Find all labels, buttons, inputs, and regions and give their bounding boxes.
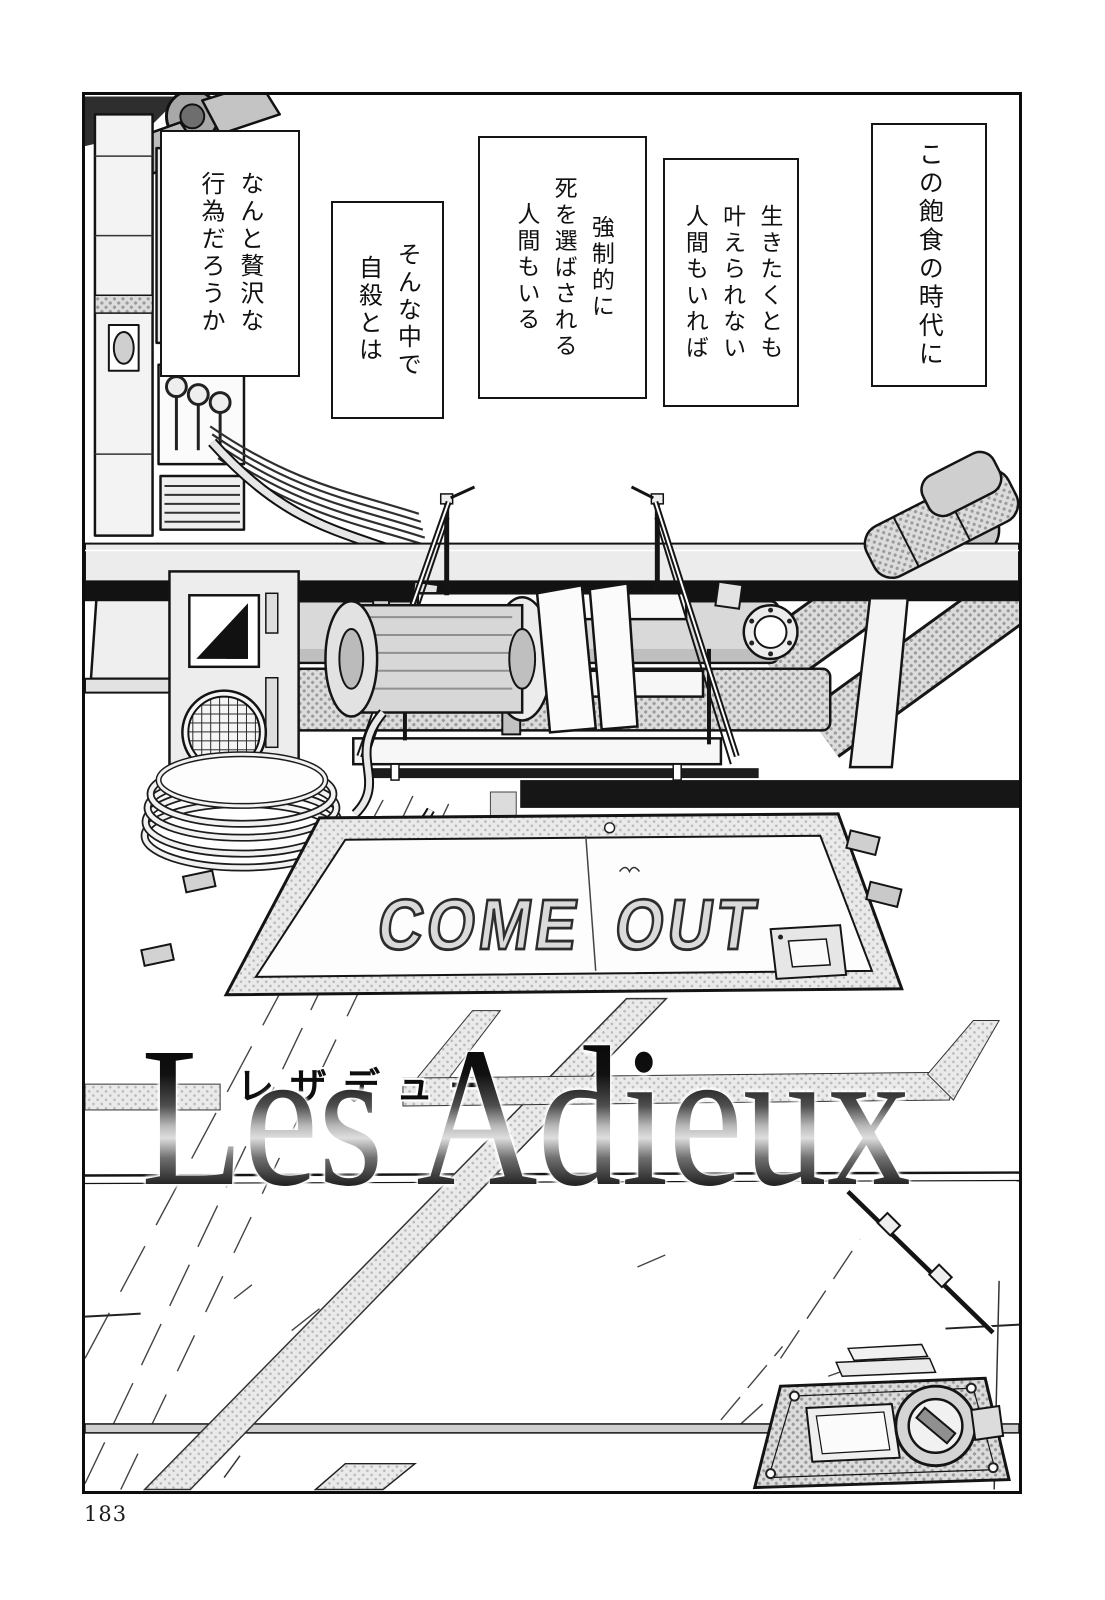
caption-box-age-of-satiation: この飽食の時代に [871, 123, 987, 387]
chapter-title-block: レザデュー Les Adieux [141, 1018, 1022, 1248]
caption-box-suicide: そんな中で 自殺とは [331, 201, 444, 419]
hatch-sign-text: COME OUT [373, 885, 765, 964]
access-panel [755, 1344, 1009, 1487]
manga-page: COME OUT [0, 0, 1105, 1600]
caption-box-cannot-live: 生きたくとも 叶えられない 人間もいれば [663, 158, 799, 407]
page-number: 183 [84, 1502, 127, 1526]
caption-text: 強制的に 死を選ばされる 人間もいる [507, 176, 619, 360]
caption-text: この飽食の時代に [909, 141, 950, 369]
caption-box-luxury: なんと贅沢な 行為だろうか [160, 130, 300, 377]
chapter-title: Les Adieux [141, 1018, 911, 1218]
manga-panel: COME OUT [82, 92, 1022, 1494]
floor-shadow-strip [520, 780, 1019, 808]
floor-wedge [316, 1464, 415, 1490]
caption-text: そんな中で 自殺とは [349, 242, 427, 379]
caption-box-forced-death: 強制的に 死を選ばされる 人間もいる [478, 136, 647, 399]
caption-text: なんと贅沢な 行為だろうか [191, 171, 269, 335]
caption-text: 生きたくとも 叶えられない 人間もいれば [675, 204, 787, 361]
